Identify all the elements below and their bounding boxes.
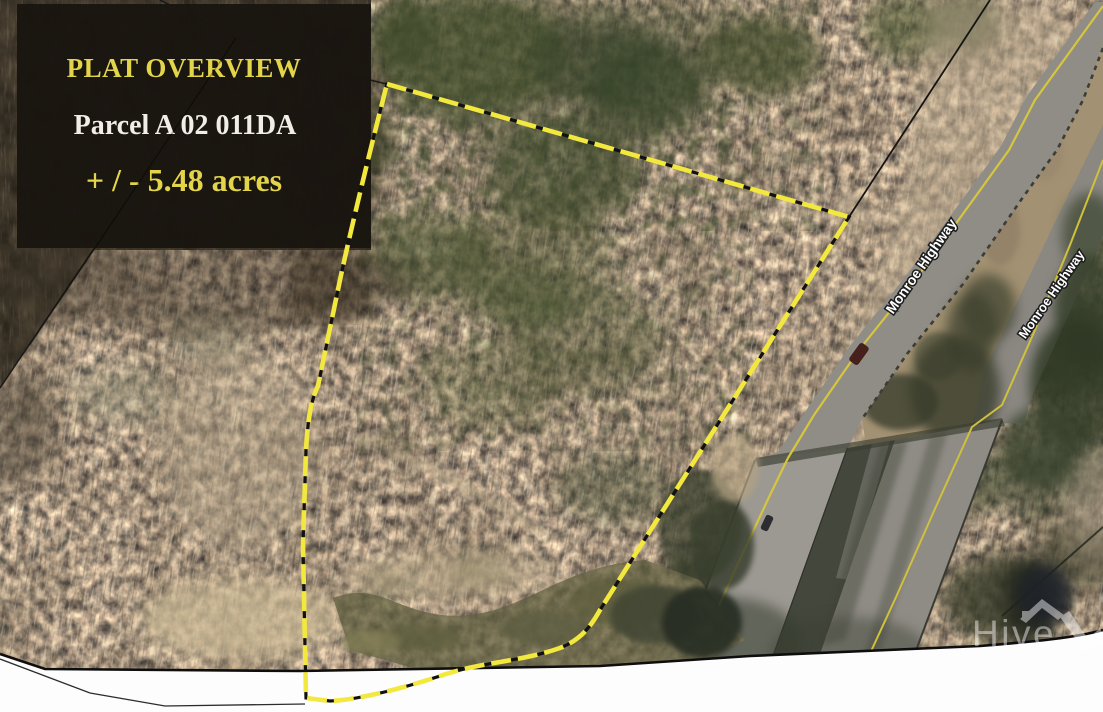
svg-text:Hive: Hive — [972, 613, 1056, 654]
svg-text:PLAT OVERVIEW: PLAT OVERVIEW — [67, 53, 302, 83]
svg-text:+ / - 5.48 acres: + / - 5.48 acres — [86, 162, 282, 198]
